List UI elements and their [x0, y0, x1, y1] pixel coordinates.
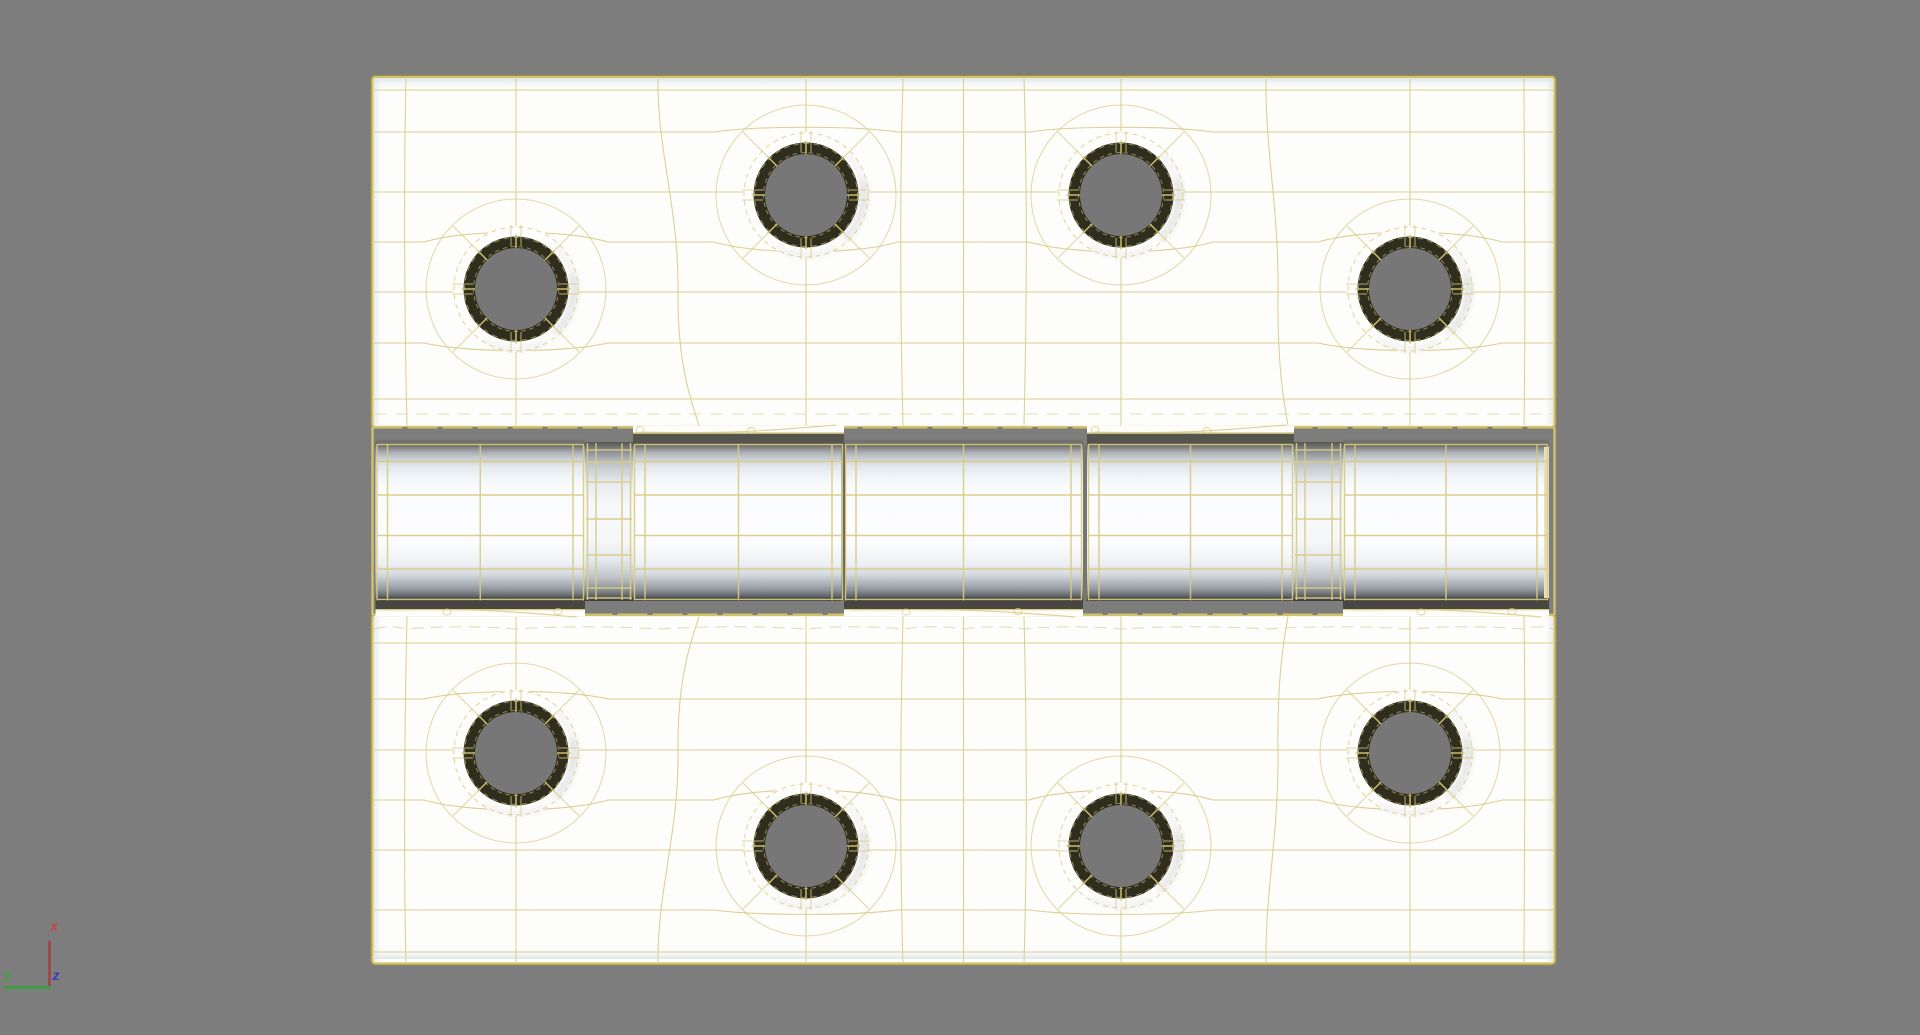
svg-text:z: z [52, 967, 60, 983]
svg-text:y: y [3, 966, 13, 982]
svg-text:x: x [49, 918, 59, 934]
